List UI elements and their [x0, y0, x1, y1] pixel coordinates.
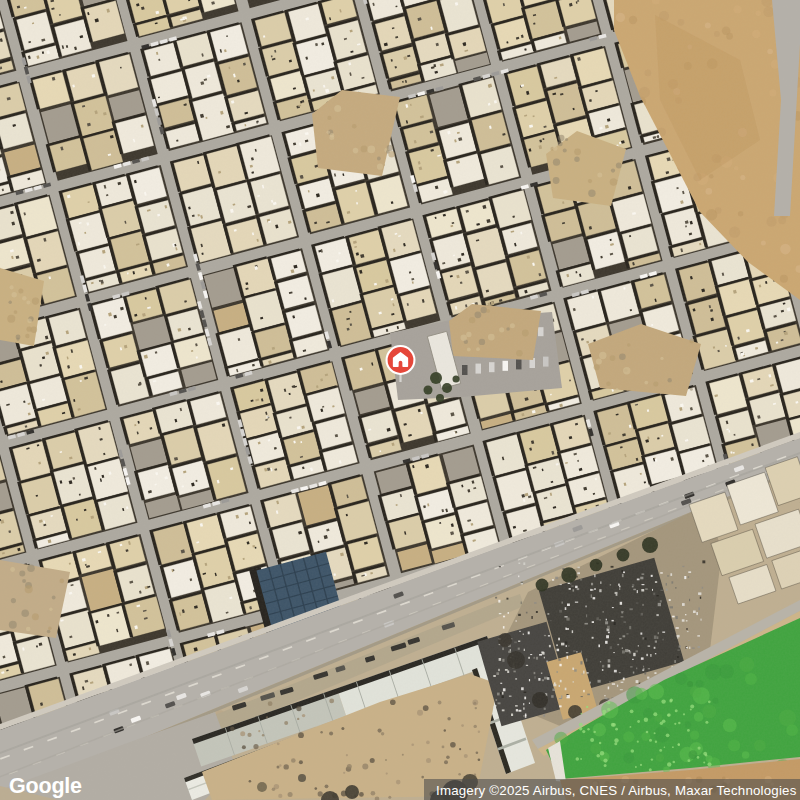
svg-text:Imagery ©2025 Airbus, CNES / A: Imagery ©2025 Airbus, CNES / Airbus, Max…	[436, 783, 797, 798]
svg-text:Google: Google	[9, 774, 82, 798]
